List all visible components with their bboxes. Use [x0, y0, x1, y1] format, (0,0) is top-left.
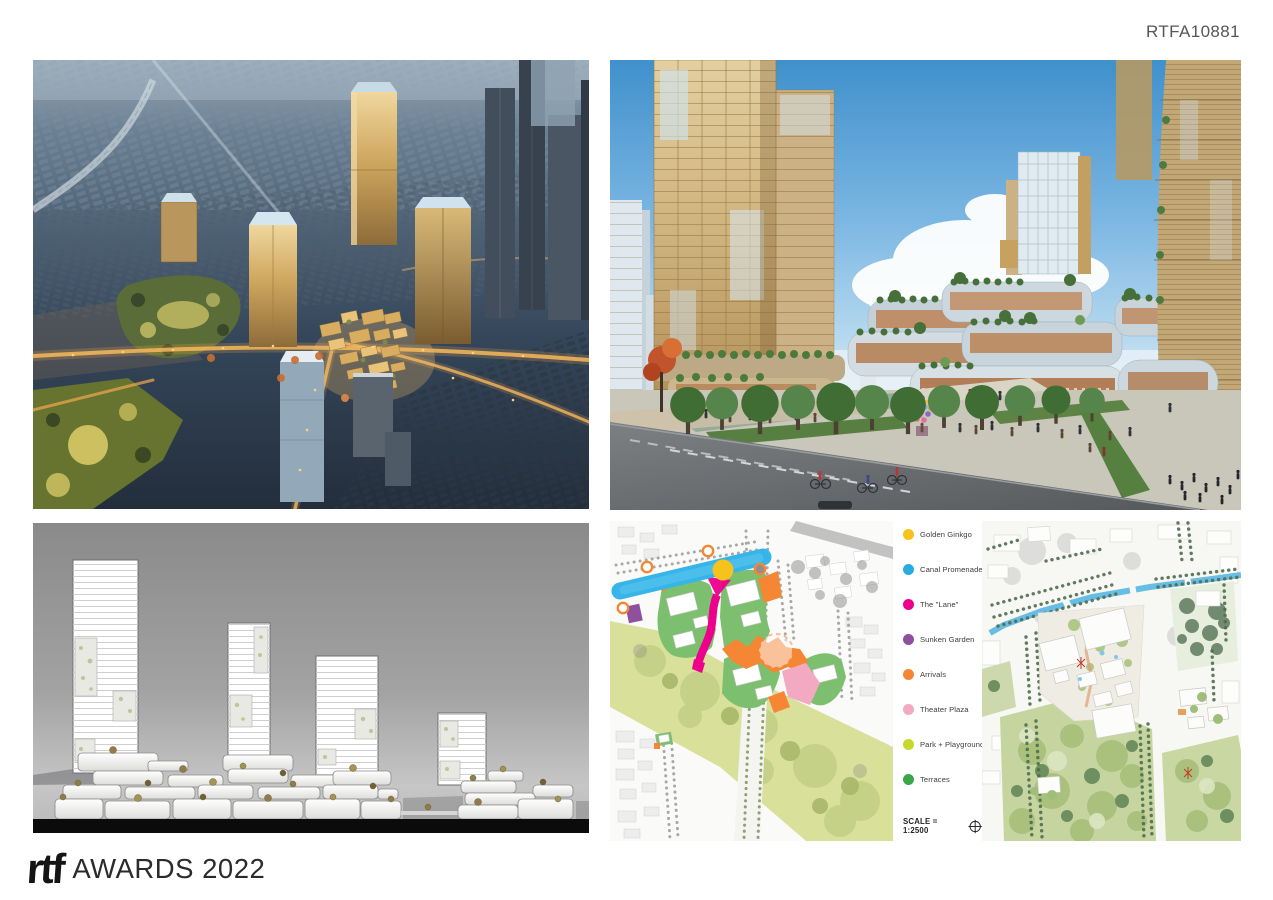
massing-elevation	[33, 523, 589, 833]
legend-item: Arrivals	[903, 669, 982, 680]
legend-color-dot	[903, 529, 914, 540]
legend-color-dot	[903, 739, 914, 750]
street-rendering	[610, 60, 1241, 510]
program-diagram-plan	[610, 521, 893, 841]
site-plans-panel: Golden GinkgoCanal PromenadeThe "Lane"Su…	[610, 521, 1241, 841]
compass-icon	[968, 819, 982, 834]
tower-4	[438, 713, 486, 785]
legend-item-label: Terraces	[920, 775, 950, 784]
legend-color-dot	[903, 704, 914, 715]
legend-item-label: Theater Plaza	[920, 705, 969, 714]
legend-color-dot	[903, 669, 914, 680]
tower-3	[316, 656, 378, 775]
legend-item: Canal Promenade	[903, 564, 982, 575]
legend-items: Golden GinkgoCanal PromenadeThe "Lane"Su…	[903, 529, 982, 785]
legend: Golden GinkgoCanal PromenadeThe "Lane"Su…	[893, 521, 982, 841]
illustrative-site-plan	[982, 521, 1241, 841]
awards-title: AWARDS 2022	[72, 853, 265, 885]
legend-item-label: Canal Promenade	[920, 565, 983, 574]
legend-item-label: Sunken Garden	[920, 635, 975, 644]
massing-elevation-panel	[33, 523, 589, 833]
car	[818, 501, 852, 509]
legend-item: The "Lane"	[903, 599, 982, 610]
aerial-rendering-panel	[33, 60, 589, 509]
legend-item: Theater Plaza	[903, 704, 982, 715]
footer: rtf AWARDS 2022	[27, 849, 265, 889]
legend-item: Sunken Garden	[903, 634, 982, 645]
legend-item-label: The "Lane"	[920, 600, 958, 609]
legend-color-dot	[903, 564, 914, 575]
background-towers	[485, 60, 589, 320]
presentation-board: RTFA10881	[0, 0, 1273, 900]
legend-color-dot	[903, 599, 914, 610]
legend-item-label: Arrivals	[920, 670, 946, 679]
entry-code: RTFA10881	[1146, 22, 1240, 42]
street-rendering-panel	[610, 60, 1241, 510]
arrival-focus-circle	[759, 634, 793, 668]
golden-ginkgo-marker	[713, 560, 734, 581]
scale-row: SCALE = 1:2500	[903, 817, 982, 835]
aerial-rendering	[33, 60, 589, 509]
scale-label: SCALE = 1:2500	[903, 817, 963, 835]
rtf-logo: rtf	[26, 849, 64, 889]
tower-1	[73, 560, 138, 773]
tower-2	[228, 623, 270, 775]
ground-bar	[33, 819, 589, 833]
legend-color-dot	[903, 634, 914, 645]
legend-item: Golden Ginkgo	[903, 529, 982, 540]
legend-item: Terraces	[903, 774, 982, 785]
legend-item-label: Golden Ginkgo	[920, 530, 972, 539]
legend-item-label: Park + Playground	[920, 740, 984, 749]
legend-item: Park + Playground	[903, 739, 982, 750]
legend-color-dot	[903, 774, 914, 785]
